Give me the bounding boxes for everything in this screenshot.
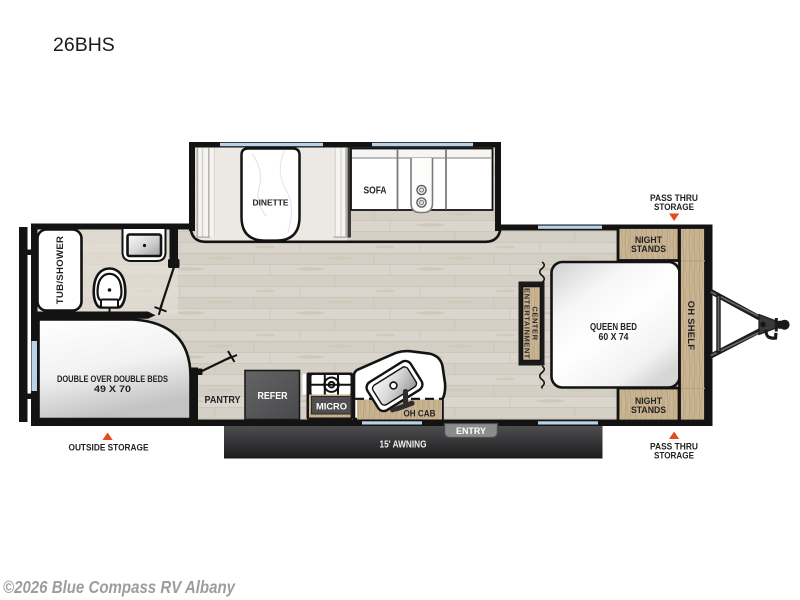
svg-text:CENTER: CENTER: [531, 306, 540, 340]
svg-text:MICRO: MICRO: [316, 402, 347, 413]
svg-text:TUB/SHOWER: TUB/SHOWER: [55, 236, 66, 305]
svg-text:DINETTE: DINETTE: [253, 198, 289, 208]
svg-text:STANDS: STANDS: [631, 405, 666, 415]
svg-text:ENTERTAINMENT: ENTERTAINMENT: [523, 288, 532, 359]
svg-text:STANDS: STANDS: [631, 244, 666, 254]
svg-text:©2026 Blue Compass RV Albany: ©2026 Blue Compass RV Albany: [3, 577, 236, 597]
svg-text:STORAGE: STORAGE: [654, 451, 694, 461]
svg-text:49 X 70: 49 X 70: [94, 383, 131, 394]
svg-text:SOFA: SOFA: [364, 185, 387, 197]
svg-text:ENTRY: ENTRY: [456, 426, 487, 437]
svg-text:OH SHELF: OH SHELF: [686, 301, 696, 350]
svg-text:STORAGE: STORAGE: [654, 202, 694, 212]
svg-text:PANTRY: PANTRY: [205, 395, 241, 406]
svg-text:15' AWNING: 15' AWNING: [380, 440, 427, 451]
svg-text:60 X 74: 60 X 74: [599, 331, 629, 343]
svg-text:OUTSIDE STORAGE: OUTSIDE STORAGE: [69, 443, 149, 453]
svg-text:OH CAB: OH CAB: [404, 409, 436, 420]
svg-text:26BHS: 26BHS: [53, 34, 115, 56]
svg-text:REFER: REFER: [258, 391, 289, 402]
